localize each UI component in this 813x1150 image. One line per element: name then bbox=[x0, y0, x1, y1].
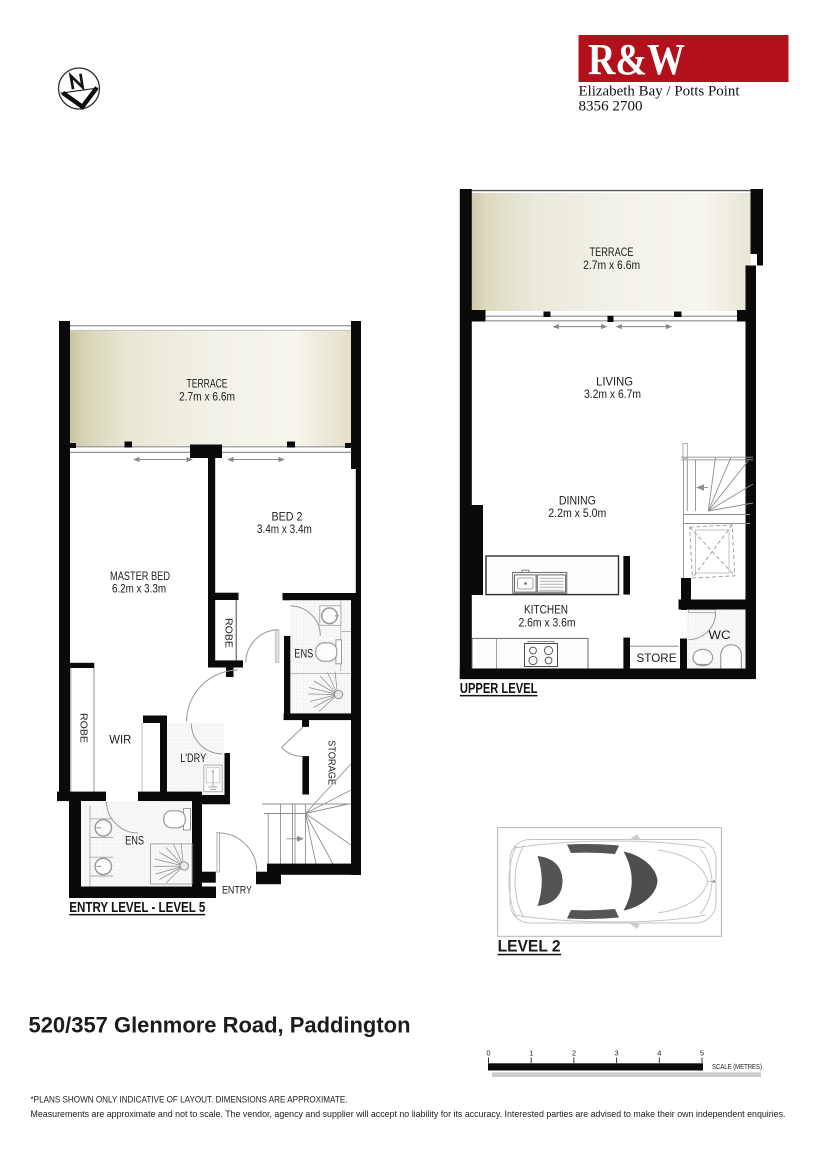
svg-text:ENS: ENS bbox=[125, 836, 144, 848]
svg-text:4: 4 bbox=[657, 1049, 661, 1058]
svg-text:1: 1 bbox=[529, 1049, 533, 1058]
svg-text:8356 2700: 8356 2700 bbox=[579, 99, 643, 115]
svg-text:Elizabeth Bay / Potts Point: Elizabeth Bay / Potts Point bbox=[579, 84, 740, 100]
svg-text:Measurements are approximate a: Measurements are approximate and not to … bbox=[31, 1109, 786, 1119]
svg-text:6.2m x 3.3m: 6.2m x 3.3m bbox=[112, 584, 166, 596]
svg-text:2.6m x 3.6m: 2.6m x 3.6m bbox=[519, 618, 576, 630]
svg-text:ROBE: ROBE bbox=[78, 713, 89, 743]
svg-text:KITCHEN: KITCHEN bbox=[524, 605, 568, 617]
svg-text:SCALE (METRES): SCALE (METRES) bbox=[712, 1062, 762, 1071]
svg-text:2.2m x 5.0m: 2.2m x 5.0m bbox=[548, 508, 606, 520]
svg-text:TERRACE: TERRACE bbox=[187, 379, 228, 391]
svg-text:*PLANS SHOWN ONLY INDICATIVE O: *PLANS SHOWN ONLY INDICATIVE OF LAYOUT. … bbox=[31, 1095, 348, 1105]
svg-text:520/357 Glenmore Road, Padding: 520/357 Glenmore Road, Paddington bbox=[29, 1013, 411, 1038]
svg-text:WC: WC bbox=[709, 630, 731, 642]
svg-text:R&W: R&W bbox=[588, 35, 685, 84]
svg-text:3.2m x 6.7m: 3.2m x 6.7m bbox=[584, 389, 641, 401]
svg-text:MASTER BED: MASTER BED bbox=[110, 571, 170, 583]
svg-text:WIR: WIR bbox=[109, 735, 131, 747]
svg-text:BED 2: BED 2 bbox=[272, 512, 303, 524]
svg-text:ENS: ENS bbox=[294, 649, 313, 661]
svg-text:TERRACE: TERRACE bbox=[590, 247, 634, 259]
svg-text:UPPER LEVEL: UPPER LEVEL bbox=[460, 681, 538, 697]
svg-text:0: 0 bbox=[486, 1049, 490, 1058]
svg-text:L'DRY: L'DRY bbox=[180, 753, 206, 765]
svg-text:LIVING: LIVING bbox=[596, 377, 633, 389]
svg-text:DINING: DINING bbox=[559, 496, 596, 508]
svg-text:3: 3 bbox=[615, 1049, 619, 1058]
svg-text:2.7m x 6.6m: 2.7m x 6.6m bbox=[179, 392, 235, 404]
svg-text:STORE: STORE bbox=[637, 653, 677, 665]
svg-text:LEVEL 2: LEVEL 2 bbox=[498, 938, 561, 956]
svg-text:ENTRY: ENTRY bbox=[222, 885, 253, 897]
svg-text:3.4m x 3.4m: 3.4m x 3.4m bbox=[257, 524, 312, 536]
svg-text:ENTRY LEVEL - LEVEL 5: ENTRY LEVEL - LEVEL 5 bbox=[69, 900, 205, 916]
svg-text:ROBE: ROBE bbox=[222, 618, 233, 648]
svg-text:2.7m x 6.6m: 2.7m x 6.6m bbox=[583, 260, 640, 272]
svg-text:5: 5 bbox=[700, 1049, 704, 1058]
svg-text:STORAGE: STORAGE bbox=[325, 740, 337, 785]
svg-text:2: 2 bbox=[572, 1049, 576, 1058]
